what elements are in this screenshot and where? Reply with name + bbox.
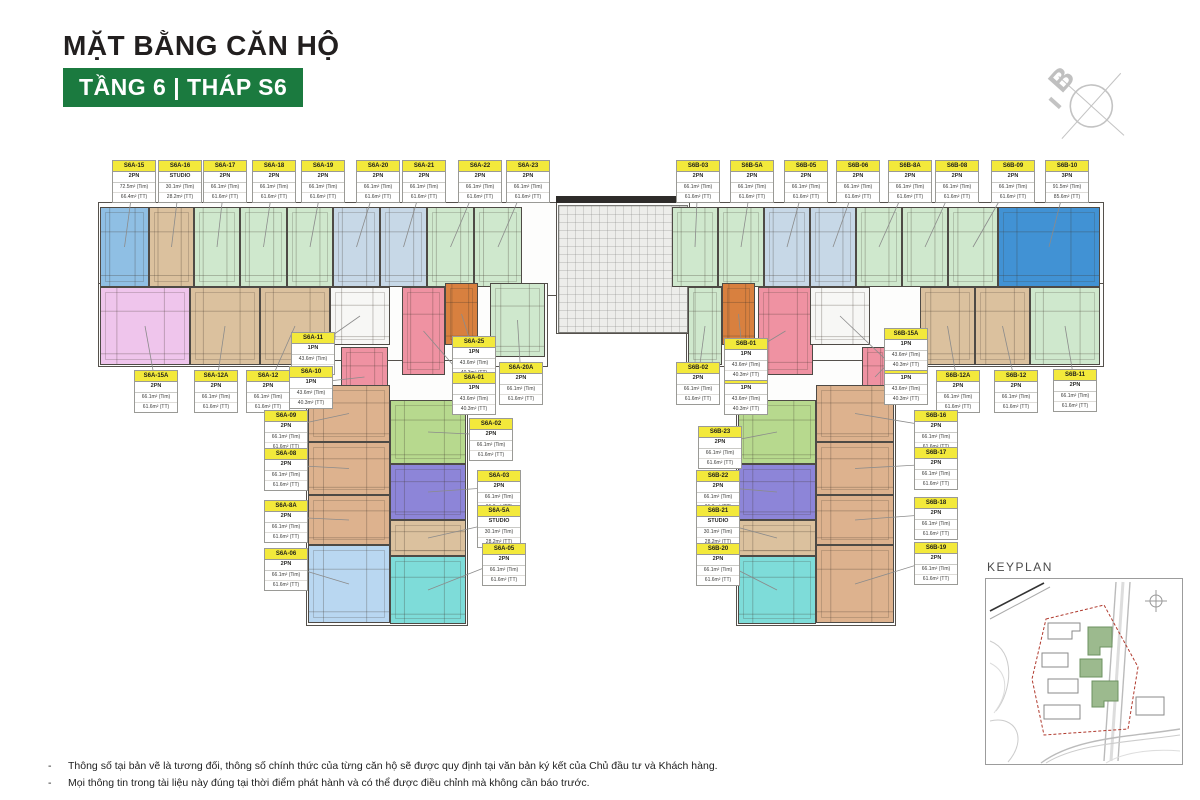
unit-label-S6A-17: S6A-172PN66.1m² (Tim)61.6m² (TT) [203, 160, 247, 203]
unit-label-id: S6A-08 [265, 449, 307, 460]
unit-label-area-tim: 66.1m² (Tim) [357, 183, 399, 193]
unit-label-area-tim: 43.6m² (Tim) [725, 361, 767, 371]
unit-block-S6B-15 [810, 287, 870, 345]
unit-label-type: 1PN [290, 378, 332, 389]
unit-label-S6B-8A: S6B-8A2PN66.1m² (Tim)61.6m² (TT) [888, 160, 932, 203]
unit-label-area-tt: 61.6m² (TT) [265, 533, 307, 542]
unit-label-id: S6B-06 [837, 161, 879, 172]
unit-label-type: 2PN [478, 482, 520, 493]
unit-label-area-tim: 43.6m² (Tim) [885, 351, 927, 361]
page-title: MẶT BẰNG CĂN HỘ [63, 30, 340, 62]
unit-label-S6A-20A: S6A-20A2PN66.1m² (Tim)61.6m² (TT) [499, 362, 543, 405]
unit-label-area-tt: 61.6m² (TT) [915, 530, 957, 539]
unit-block-S6A-17 [194, 207, 240, 287]
unit-label-area-tim: 66.1m² (Tim) [731, 183, 773, 193]
unit-label-id: S6B-01 [725, 339, 767, 350]
unit-block-S6B-8A [856, 207, 902, 287]
north-compass-icon: B [1010, 45, 1160, 165]
unit-label-type: 3PN [1046, 172, 1088, 183]
unit-label-area-tim: 91.5m² (Tim) [1046, 183, 1088, 193]
unit-label-S6A-19: S6A-192PN66.1m² (Tim)61.6m² (TT) [301, 160, 345, 203]
unit-label-id: S6A-15A [135, 371, 177, 382]
unit-label-area-tt: 61.6m² (TT) [470, 451, 512, 460]
unit-label-S6A-5A: S6A-5ASTUDIO30.1m² (Tim)28.2m² (TT) [477, 505, 521, 548]
unit-label-type: 2PN [357, 172, 399, 183]
unit-label-area-tt: 61.6m² (TT) [837, 193, 879, 202]
unit-label-area-tt: 61.6m² (TT) [697, 576, 739, 585]
unit-label-S6A-12: S6A-122PN66.1m² (Tim)61.6m² (TT) [246, 370, 290, 413]
core-dark-0 [556, 196, 690, 203]
unit-label-id: S6A-18 [253, 161, 295, 172]
unit-label-area-tt: 66.4m² (TT) [113, 193, 155, 202]
unit-label-area-tim: 43.6m² (Tim) [885, 385, 927, 395]
unit-label-area-tim: 66.1m² (Tim) [483, 566, 525, 576]
unit-label-id: S6A-20 [357, 161, 399, 172]
unit-label-id: S6A-23 [507, 161, 549, 172]
unit-label-area-tt: 61.6m² (TT) [889, 193, 931, 202]
unit-label-area-tt: 61.6m² (TT) [253, 193, 295, 202]
footer-note-1: - Thông số tại bản vẽ là tương đối, thôn… [48, 758, 718, 775]
unit-block-S6A-21 [380, 207, 427, 287]
unit-block-S6A-01 [402, 287, 445, 375]
unit-label-id: S6A-01 [453, 373, 495, 384]
unit-label-id: S6B-22 [697, 471, 739, 482]
unit-block-S6B-10 [998, 207, 1100, 287]
unit-block-S6A-06 [308, 545, 390, 623]
unit-block-S6B-17 [816, 442, 894, 495]
unit-label-S6B-15A: S6B-15A1PN43.6m² (Tim)40.3m² (TT) [884, 328, 928, 371]
unit-block-S6A-23 [474, 207, 522, 287]
unit-label-area-tt: 61.6m² (TT) [1054, 402, 1096, 411]
unit-label-type: 2PN [204, 172, 246, 183]
unit-label-S6B-05: S6B-052PN66.1m² (Tim)61.6m² (TT) [784, 160, 828, 203]
unit-label-type: 2PN [915, 509, 957, 520]
unit-label-type: 2PN [265, 460, 307, 471]
unit-label-area-tim: 66.1m² (Tim) [135, 393, 177, 403]
unit-label-S6A-12A: S6A-12A2PN66.1m² (Tim)61.6m² (TT) [194, 370, 238, 413]
unit-label-area-tt: 61.6m² (TT) [936, 193, 978, 202]
unit-label-area-tt: 61.6m² (TT) [459, 193, 501, 202]
unit-label-area-tt: 61.6m² (TT) [403, 193, 445, 202]
unit-block-S6A-15A [100, 287, 190, 365]
unit-label-area-tt: 61.6m² (TT) [699, 459, 741, 468]
unit-block-S6B-22 [738, 464, 816, 520]
unit-label-area-tt: 61.6m² (TT) [915, 480, 957, 489]
unit-label-type: 2PN [483, 555, 525, 566]
unit-block-S6B-19 [816, 545, 894, 623]
unit-label-type: 2PN [785, 172, 827, 183]
unit-label-area-tim: 66.1m² (Tim) [302, 183, 344, 193]
unit-label-area-tim: 66.1m² (Tim) [936, 183, 978, 193]
unit-label-type: 2PN [937, 382, 979, 393]
unit-label-id: S6A-02 [470, 419, 512, 430]
unit-label-id: S6A-22 [459, 161, 501, 172]
unit-label-S6A-10: S6A-101PN43.6m² (Tim)40.3m² (TT) [289, 366, 333, 409]
unit-label-type: 1PN [453, 348, 495, 359]
unit-block-S6A-22 [427, 207, 474, 287]
unit-label-type: 2PN [247, 382, 289, 393]
unit-label-type: 1PN [725, 350, 767, 361]
unit-label-type: 2PN [915, 554, 957, 565]
unit-label-type: 1PN [885, 340, 927, 351]
unit-label-type: 2PN [302, 172, 344, 183]
unit-label-type: 1PN [292, 344, 334, 355]
unit-label-area-tt: 61.6m² (TT) [302, 193, 344, 202]
unit-label-type: 1PN [453, 384, 495, 395]
unit-block-S6B-20 [738, 556, 816, 624]
keyplan-map [985, 578, 1183, 765]
unit-label-id: S6A-17 [204, 161, 246, 172]
unit-label-S6B-19: S6B-192PN66.1m² (Tim)61.6m² (TT) [914, 542, 958, 585]
unit-label-S6B-02: S6B-022PN66.1m² (Tim)61.6m² (TT) [676, 362, 720, 405]
unit-label-type: 1PN [725, 384, 767, 395]
unit-label-id: S6B-12 [995, 371, 1037, 382]
unit-block-S6B-03 [672, 207, 718, 287]
unit-label-id: S6B-21 [697, 506, 739, 517]
unit-label-area-tt: 61.6m² (TT) [992, 193, 1034, 202]
unit-label-type: 2PN [195, 382, 237, 393]
floor-tower-badge: TẦNG 6 | THÁP S6 [63, 68, 303, 107]
unit-block-S6B-11 [1030, 287, 1100, 365]
unit-label-type: 2PN [677, 374, 719, 385]
unit-label-area-tim: 72.5m² (Tim) [113, 183, 155, 193]
unit-label-S6B-12A: S6B-12A2PN66.1m² (Tim)61.6m² (TT) [936, 370, 980, 413]
unit-label-area-tt: 61.6m² (TT) [195, 403, 237, 412]
unit-label-id: S6B-16 [915, 411, 957, 422]
unit-label-S6A-02: S6A-022PN66.1m² (Tim)61.6m² (TT) [469, 418, 513, 461]
unit-label-S6B-21: S6B-21STUDIO30.1m² (Tim)28.2m² (TT) [696, 505, 740, 548]
unit-label-type: 2PN [697, 555, 739, 566]
unit-label-id: S6A-11 [292, 333, 334, 344]
unit-label-S6A-01: S6A-011PN43.6m² (Tim)40.3m² (TT) [452, 372, 496, 415]
unit-label-id: S6B-5A [731, 161, 773, 172]
unit-label-id: S6A-10 [290, 367, 332, 378]
unit-label-id: S6B-11 [1054, 370, 1096, 381]
unit-label-area-tt: 61.6m² (TT) [731, 193, 773, 202]
unit-label-id: S6A-21 [403, 161, 445, 172]
unit-label-area-tim: 66.1m² (Tim) [697, 566, 739, 576]
unit-label-area-tt: 40.3m² (TT) [290, 399, 332, 408]
unit-label-area-tim: 66.1m² (Tim) [265, 471, 307, 481]
unit-label-id: S6B-20 [697, 544, 739, 555]
unit-label-S6A-15: S6A-152PN72.5m² (Tim)66.4m² (TT) [112, 160, 156, 203]
unit-block-S6A-8A [308, 495, 390, 545]
unit-label-S6A-05: S6A-052PN66.1m² (Tim)61.6m² (TT) [482, 543, 526, 586]
unit-label-area-tim: 43.6m² (Tim) [453, 395, 495, 405]
unit-label-id: S6B-17 [915, 448, 957, 459]
unit-label-id: S6B-09 [992, 161, 1034, 172]
unit-label-type: 2PN [265, 560, 307, 571]
unit-label-area-tt: 61.6m² (TT) [507, 193, 549, 202]
unit-label-S6A-20: S6A-202PN66.1m² (Tim)61.6m² (TT) [356, 160, 400, 203]
unit-label-id: S6A-5A [478, 506, 520, 517]
unit-label-area-tt: 61.6m² (TT) [785, 193, 827, 202]
unit-label-type: 2PN [677, 172, 719, 183]
unit-label-id: S6A-8A [265, 501, 307, 512]
unit-label-area-tim: 66.1m² (Tim) [478, 493, 520, 503]
unit-label-id: S6A-05 [483, 544, 525, 555]
keyplan-title: KEYPLAN [987, 560, 1053, 574]
core-grid-1 [558, 205, 688, 333]
unit-label-type: 2PN [507, 172, 549, 183]
unit-label-S6B-06: S6B-062PN66.1m² (Tim)61.6m² (TT) [836, 160, 880, 203]
unit-label-area-tim: 66.1m² (Tim) [677, 385, 719, 395]
unit-label-type: 2PN [113, 172, 155, 183]
unit-label-area-tt: 28.2m² (TT) [159, 193, 201, 202]
unit-label-area-tt: 61.6m² (TT) [995, 403, 1037, 412]
unit-label-area-tim: 66.1m² (Tim) [992, 183, 1034, 193]
unit-label-type: 2PN [936, 172, 978, 183]
unit-label-S6A-18: S6A-182PN66.1m² (Tim)61.6m² (TT) [252, 160, 296, 203]
unit-label-S6A-09: S6A-092PN66.1m² (Tim)61.6m² (TT) [264, 410, 308, 453]
unit-label-area-tim: 66.1m² (Tim) [785, 183, 827, 193]
unit-label-area-tt: 61.6m² (TT) [265, 481, 307, 490]
unit-label-S6A-21: S6A-212PN66.1m² (Tim)61.6m² (TT) [402, 160, 446, 203]
unit-label-area-tim: 43.6m² (Tim) [290, 389, 332, 399]
unit-label-S6B-10: S6B-103PN91.5m² (Tim)85.6m² (TT) [1045, 160, 1089, 203]
unit-label-area-tim: 66.1m² (Tim) [915, 565, 957, 575]
unit-label-area-tt: 85.6m² (TT) [1046, 193, 1088, 202]
unit-block-S6A-18 [240, 207, 287, 287]
unit-block-S6B-25A [722, 283, 755, 345]
unit-label-S6A-16: S6A-16STUDIO30.1m² (Tim)28.2m² (TT) [158, 160, 202, 203]
unit-block-S6A-20A [490, 283, 545, 357]
unit-label-area-tim: 66.1m² (Tim) [837, 183, 879, 193]
unit-label-type: 2PN [403, 172, 445, 183]
unit-label-area-tt: 61.6m² (TT) [135, 403, 177, 412]
unit-label-area-tim: 30.1m² (Tim) [478, 528, 520, 538]
unit-label-S6B-17: S6B-172PN66.1m² (Tim)61.6m² (TT) [914, 447, 958, 490]
unit-label-area-tim: 66.1m² (Tim) [995, 393, 1037, 403]
unit-label-type: 2PN [699, 438, 741, 449]
unit-label-area-tt: 40.3m² (TT) [725, 371, 767, 380]
unit-label-area-tim: 66.1m² (Tim) [915, 520, 957, 530]
unit-label-type: 2PN [889, 172, 931, 183]
unit-label-area-tt: 61.6m² (TT) [500, 395, 542, 404]
unit-label-area-tim: 66.1m² (Tim) [889, 183, 931, 193]
unit-label-S6B-11: S6B-112PN66.1m² (Tim)61.6m² (TT) [1053, 369, 1097, 412]
unit-label-area-tt: 61.6m² (TT) [357, 193, 399, 202]
unit-label-area-tim: 66.1m² (Tim) [699, 449, 741, 459]
unit-label-id: S6B-18 [915, 498, 957, 509]
unit-block-S6A-03 [390, 464, 466, 520]
unit-label-S6B-01: S6B-011PN43.6m² (Tim)40.3m² (TT) [724, 338, 768, 381]
unit-label-id: S6B-10 [1046, 161, 1088, 172]
unit-label-area-tim: 30.1m² (Tim) [697, 528, 739, 538]
unit-label-area-tim: 66.1m² (Tim) [915, 433, 957, 443]
unit-label-area-tim: 66.1m² (Tim) [265, 523, 307, 533]
footer-notes: - Thông số tại bản vẽ là tương đối, thôn… [48, 758, 718, 792]
unit-label-area-tim: 66.1m² (Tim) [195, 393, 237, 403]
unit-label-area-tim: 66.1m² (Tim) [507, 183, 549, 193]
unit-label-area-tim: 66.1m² (Tim) [204, 183, 246, 193]
unit-block-S6A-11 [330, 287, 390, 345]
unit-label-id: S6A-12A [195, 371, 237, 382]
unit-label-area-tt: 61.6m² (TT) [915, 575, 957, 584]
unit-label-S6A-06: S6A-062PN66.1m² (Tim)61.6m² (TT) [264, 548, 308, 591]
unit-label-area-tim: 30.1m² (Tim) [159, 183, 201, 193]
unit-label-S6A-8A: S6A-8A2PN66.1m² (Tim)61.6m² (TT) [264, 500, 308, 543]
unit-block-S6B-12 [975, 287, 1030, 365]
unit-label-id: S6B-8A [889, 161, 931, 172]
unit-label-type: 2PN [992, 172, 1034, 183]
unit-label-type: STUDIO [159, 172, 201, 183]
unit-block-S6A-12A [190, 287, 260, 365]
unit-label-id: S6A-20A [500, 363, 542, 374]
unit-block-S6B-09 [948, 207, 998, 287]
unit-label-type: 2PN [915, 422, 957, 433]
unit-block-S6B-08 [902, 207, 948, 287]
unit-label-S6B-20: S6B-202PN66.1m² (Tim)61.6m² (TT) [696, 543, 740, 586]
unit-label-id: S6B-12A [937, 371, 979, 382]
unit-label-S6A-15A: S6A-15A2PN66.1m² (Tim)61.6m² (TT) [134, 370, 178, 413]
unit-block-S6B-21 [738, 520, 816, 556]
unit-label-area-tim: 43.6m² (Tim) [725, 395, 767, 405]
unit-label-S6B-08: S6B-082PN66.1m² (Tim)61.6m² (TT) [935, 160, 979, 203]
unit-block-S6A-20 [333, 207, 380, 287]
unit-label-id: S6B-03 [677, 161, 719, 172]
unit-label-S6A-08: S6A-082PN66.1m² (Tim)61.6m² (TT) [264, 448, 308, 491]
unit-label-type: 2PN [731, 172, 773, 183]
unit-block-S6B-12A [920, 287, 975, 365]
unit-block-S6B-02 [688, 287, 722, 365]
unit-block-S6A-19 [287, 207, 333, 287]
unit-label-type: 1PN [885, 374, 927, 385]
unit-label-type: 2PN [995, 382, 1037, 393]
unit-label-area-tim: 66.1m² (Tim) [265, 571, 307, 581]
unit-label-S6B-23: S6B-232PN66.1m² (Tim)61.6m² (TT) [698, 426, 742, 469]
unit-label-area-tim: 66.1m² (Tim) [677, 183, 719, 193]
bullet-dash: - [48, 775, 54, 792]
unit-label-id: S6A-12 [247, 371, 289, 382]
unit-label-id: S6A-09 [265, 411, 307, 422]
unit-label-id: S6A-15 [113, 161, 155, 172]
unit-label-id: S6B-02 [677, 363, 719, 374]
unit-block-S6B-5A [718, 207, 764, 287]
unit-label-area-tim: 66.1m² (Tim) [697, 493, 739, 503]
unit-label-type: 2PN [697, 482, 739, 493]
unit-label-S6B-09: S6B-092PN66.1m² (Tim)61.6m² (TT) [991, 160, 1035, 203]
unit-block-S6A-15 [100, 207, 149, 287]
unit-label-id: S6A-19 [302, 161, 344, 172]
unit-label-id: S6A-16 [159, 161, 201, 172]
unit-label-area-tim: 43.6m² (Tim) [292, 355, 334, 365]
unit-label-S6B-12: S6B-122PN66.1m² (Tim)61.6m² (TT) [994, 370, 1038, 413]
unit-label-type: 2PN [253, 172, 295, 183]
unit-label-area-tim: 66.1m² (Tim) [253, 183, 295, 193]
unit-block-S6B-18 [816, 495, 894, 545]
unit-label-area-tt: 40.3m² (TT) [885, 361, 927, 370]
unit-label-type: 2PN [265, 512, 307, 523]
unit-label-area-tim: 66.1m² (Tim) [265, 433, 307, 443]
unit-block-S6B-16 [816, 385, 894, 442]
unit-label-type: 2PN [135, 382, 177, 393]
footer-note-1-text: Thông số tại bản vẽ là tương đối, thông … [68, 758, 718, 775]
unit-label-id: S6A-06 [265, 549, 307, 560]
unit-label-type: 2PN [459, 172, 501, 183]
unit-label-area-tt: 40.3m² (TT) [725, 405, 767, 414]
unit-block-S6B-05 [764, 207, 810, 287]
unit-label-type: 2PN [837, 172, 879, 183]
unit-label-area-tim: 66.1m² (Tim) [1054, 392, 1096, 402]
unit-label-type: 2PN [470, 430, 512, 441]
unit-label-area-tt: 61.6m² (TT) [265, 581, 307, 590]
unit-label-S6B-18: S6B-182PN66.1m² (Tim)61.6m² (TT) [914, 497, 958, 540]
unit-label-area-tim: 66.1m² (Tim) [500, 385, 542, 395]
footer-note-2: - Mọi thông tin trong tài liệu này đúng … [48, 775, 718, 792]
unit-label-area-tim: 43.6m² (Tim) [453, 359, 495, 369]
unit-label-S6A-23: S6A-232PN66.1m² (Tim)61.6m² (TT) [506, 160, 550, 203]
unit-label-id: S6B-15A [885, 329, 927, 340]
unit-label-area-tim: 66.1m² (Tim) [459, 183, 501, 193]
unit-label-area-tt: 61.6m² (TT) [677, 193, 719, 202]
unit-block-S6B-06 [810, 207, 856, 287]
unit-label-area-tt: 61.6m² (TT) [483, 576, 525, 585]
unit-label-type: 2PN [265, 422, 307, 433]
unit-label-S6B-5A: S6B-5A2PN66.1m² (Tim)61.6m² (TT) [730, 160, 774, 203]
unit-label-type: STUDIO [478, 517, 520, 528]
unit-block-S6A-5A [390, 520, 466, 556]
unit-label-area-tim: 66.1m² (Tim) [470, 441, 512, 451]
bullet-dash: - [48, 758, 54, 775]
unit-label-area-tt: 40.3m² (TT) [453, 405, 495, 414]
unit-label-area-tt: 61.6m² (TT) [677, 395, 719, 404]
unit-label-S6B-03: S6B-032PN66.1m² (Tim)61.6m² (TT) [676, 160, 720, 203]
unit-block-S6A-05 [390, 556, 466, 624]
unit-label-area-tt: 61.6m² (TT) [204, 193, 246, 202]
unit-block-S6A-08 [308, 442, 390, 495]
unit-label-id: S6A-03 [478, 471, 520, 482]
unit-label-area-tim: 66.1m² (Tim) [403, 183, 445, 193]
unit-label-type: 2PN [500, 374, 542, 385]
unit-label-type: 2PN [1054, 381, 1096, 392]
unit-label-type: 2PN [915, 459, 957, 470]
unit-label-type: STUDIO [697, 517, 739, 528]
footer-note-2-text: Mọi thông tin trong tài liệu này đúng tạ… [68, 775, 590, 792]
unit-label-id: S6B-23 [699, 427, 741, 438]
unit-label-area-tt: 40.3m² (TT) [885, 395, 927, 404]
unit-label-id: S6A-25 [453, 337, 495, 348]
unit-label-area-tim: 66.1m² (Tim) [915, 470, 957, 480]
unit-label-id: S6B-19 [915, 543, 957, 554]
unit-label-area-tim: 66.1m² (Tim) [247, 393, 289, 403]
unit-label-area-tim: 66.1m² (Tim) [937, 393, 979, 403]
unit-label-id: S6B-05 [785, 161, 827, 172]
unit-block-S6A-16 [149, 207, 194, 287]
unit-label-S6A-22: S6A-222PN66.1m² (Tim)61.6m² (TT) [458, 160, 502, 203]
unit-label-id: S6B-08 [936, 161, 978, 172]
